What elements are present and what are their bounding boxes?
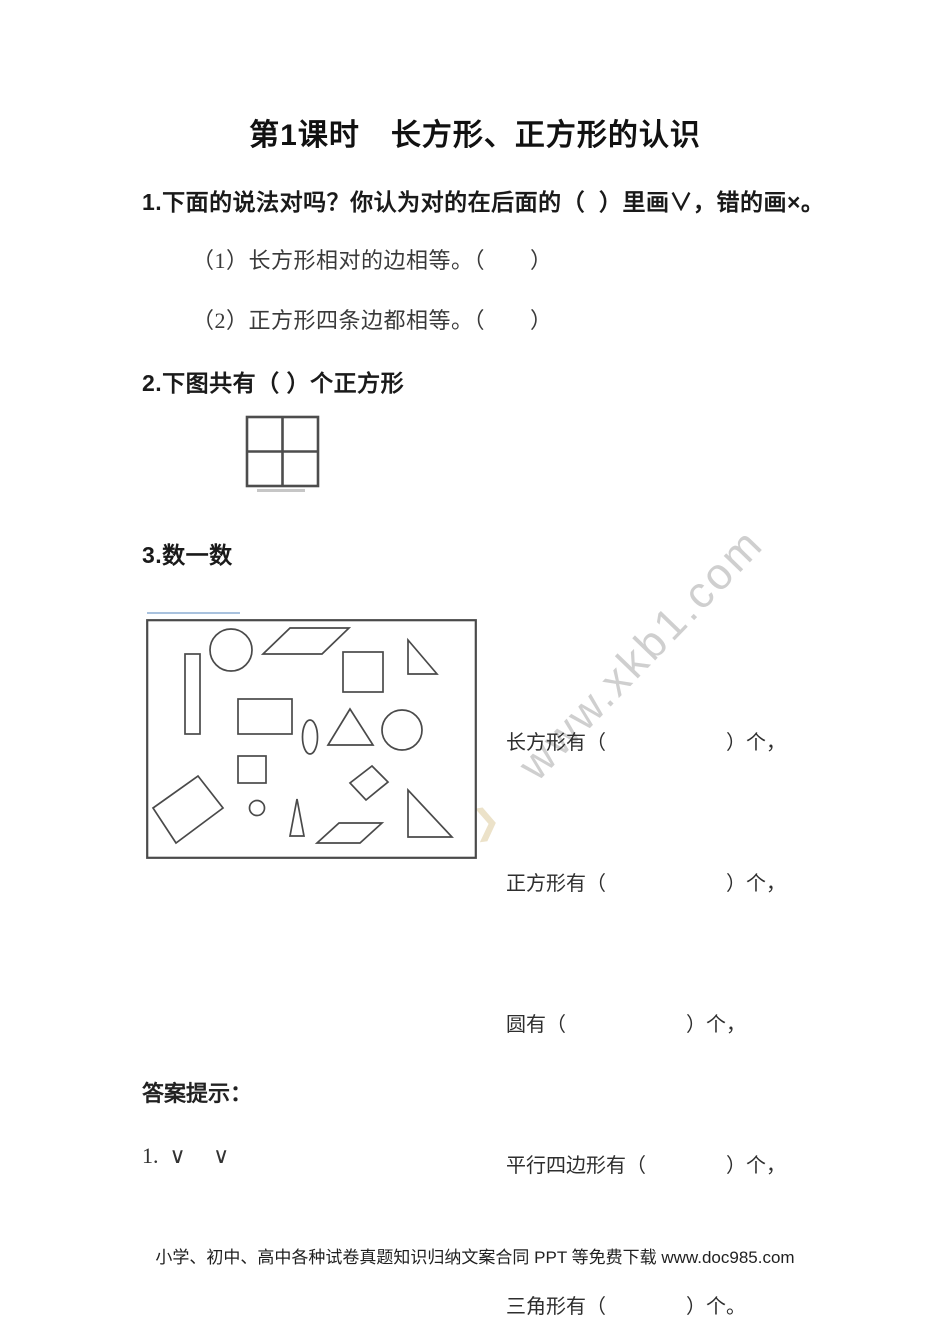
diamond [350, 766, 388, 800]
circle-middle-right [382, 710, 422, 750]
worksheet-page: www.xkb1.com ❯ 第1课时 长方形、正方形的认识 1.下面的说法对吗… [0, 0, 950, 1344]
narrow-triangle [290, 799, 304, 836]
two-by-two-grid-figure [245, 415, 321, 491]
question1-item2: （2）正方形四条边都相等。（ ） [192, 303, 553, 335]
shapes-figure-border [147, 620, 476, 858]
question1-prompt: 1.下面的说法对吗？你认为对的在后面的（ ）里画∨，错的画×。 [142, 183, 824, 217]
answers-heading: 答案提示： [142, 1076, 252, 1108]
vertical-ellipse [303, 720, 318, 754]
large-circle-top-left [210, 629, 252, 671]
shapes-figure-svg [146, 619, 477, 859]
triangle-middle [328, 709, 373, 745]
blank-circles: 圆有（ ）个， [506, 1002, 786, 1049]
question1-item1: （1）长方形相对的边相等。（ ） [192, 243, 553, 275]
question2-prompt: 2.下图共有（ ）个正方形 [142, 364, 404, 398]
page-title: 第1课时 长方形、正方形的认识 [0, 110, 950, 154]
blank-rectangles: 长方形有（ ）个， [506, 720, 786, 767]
tall-thin-rectangle [185, 654, 200, 734]
small-circle [250, 801, 265, 816]
blank-squares: 正方形有（ ）个， [506, 861, 786, 908]
answers-line1: 1. ∨ ∨ [142, 1138, 229, 1170]
rectangle-middle [238, 699, 292, 734]
blank-triangles: 三角形有（ ）个。 [506, 1284, 786, 1331]
parallelogram-top [263, 628, 349, 654]
right-triangle-bottom [408, 790, 452, 837]
tilted-rectangle [153, 776, 223, 843]
parallelogram-bottom [317, 823, 382, 843]
small-square [238, 756, 266, 783]
footer-download-notice: 小学、初中、高中各种试卷真题知识归纳文案合同 PPT 等免费下载 www.doc… [0, 1243, 950, 1268]
grid-shadow-line [257, 489, 305, 492]
figure-highlight-line [147, 612, 240, 614]
square-top [343, 652, 383, 692]
blank-parallelograms: 平行四边形有（ ）个， [506, 1143, 786, 1190]
count-blanks-list: 长方形有（ ）个， 正方形有（ ）个， 圆有（ ）个， 平行四边形有（ ）个， … [506, 626, 786, 1344]
right-triangle-top [408, 640, 437, 674]
question3-prompt: 3.数一数 [142, 536, 233, 570]
